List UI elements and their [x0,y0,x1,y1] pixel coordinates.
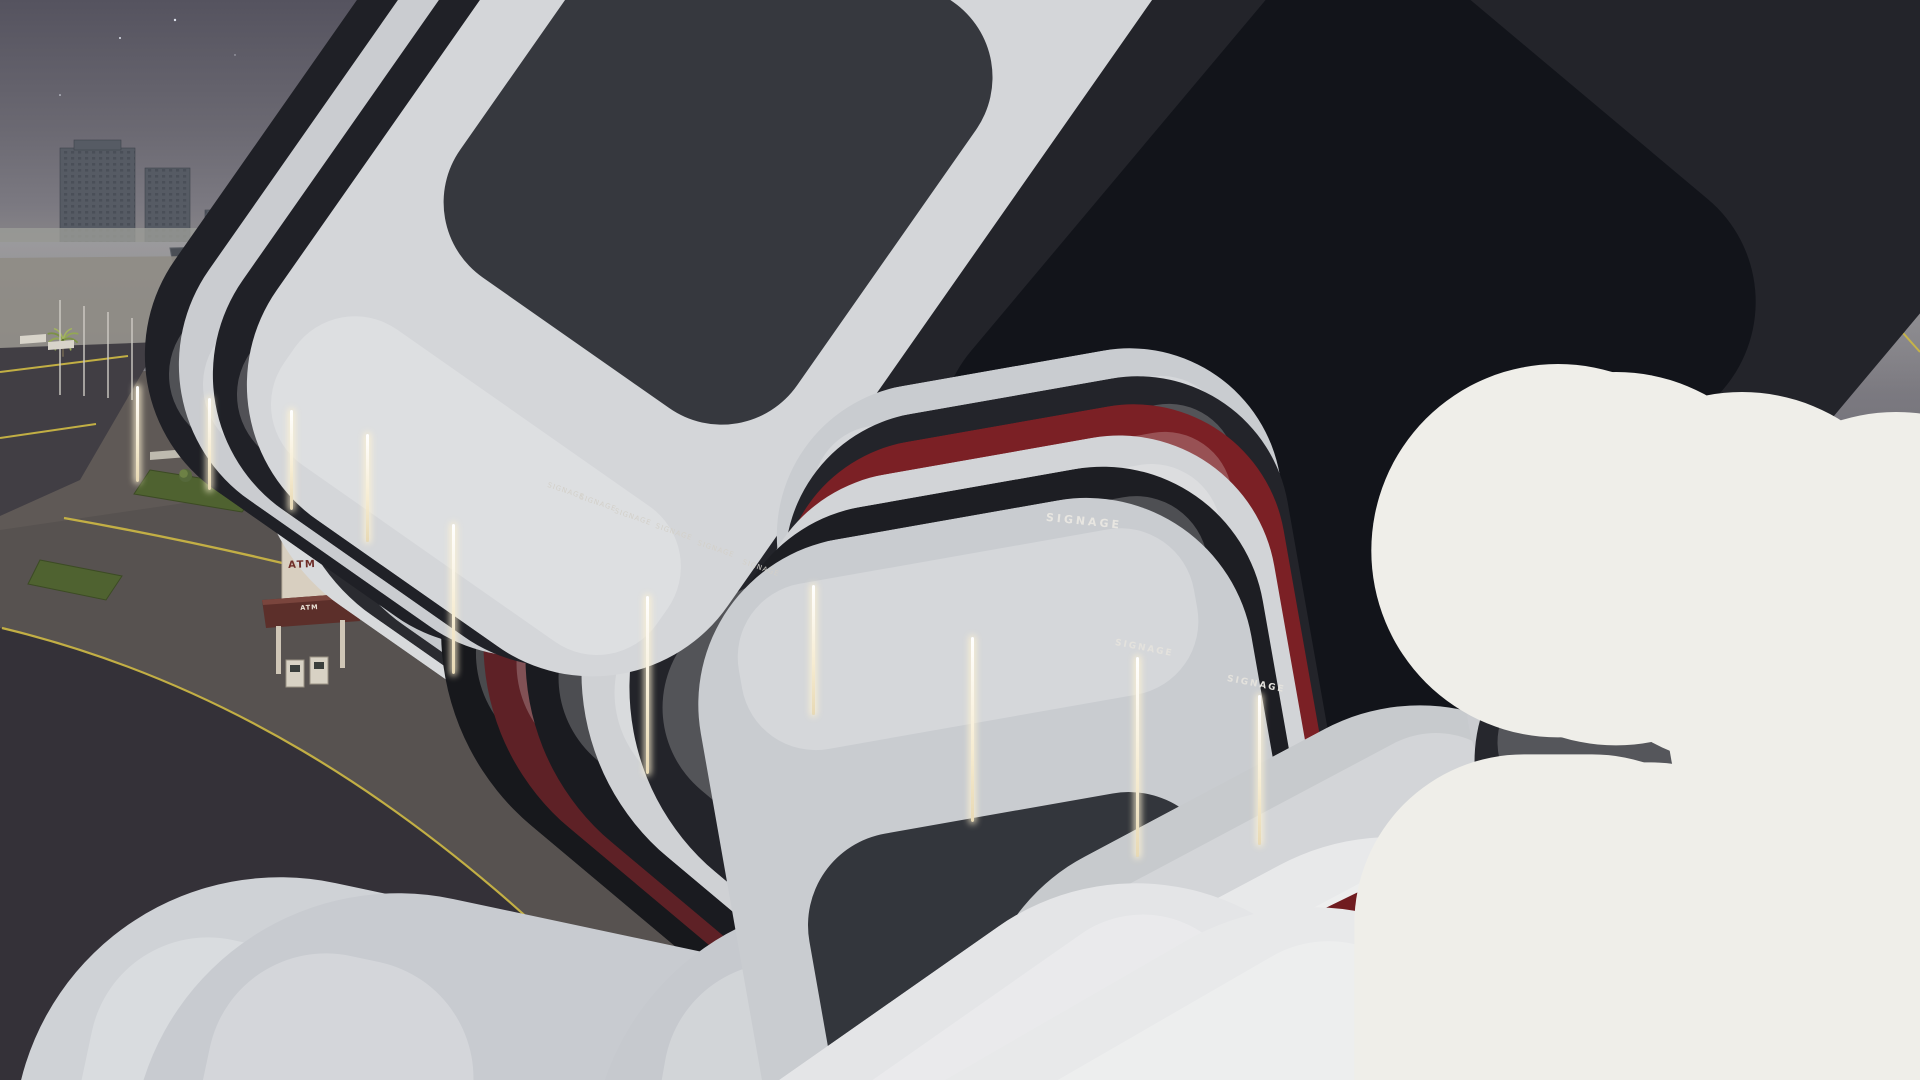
atm-canopy-text: ATM [300,603,319,612]
architectural-render: SIGNAGE SIGNAGE SIGNAGE SIGNAGE SIGNAGE … [0,0,1920,1080]
light-column [646,596,649,774]
scene-canvas [0,0,1920,1080]
light-column [1136,657,1139,857]
light-column [452,524,455,674]
light-column [1258,695,1261,845]
atm-tower-text: ATM [288,559,317,571]
light-column [812,585,815,715]
light-column [136,386,139,482]
light-column [208,398,211,490]
light-column [366,434,369,542]
light-column [290,410,293,510]
light-column [971,637,974,822]
